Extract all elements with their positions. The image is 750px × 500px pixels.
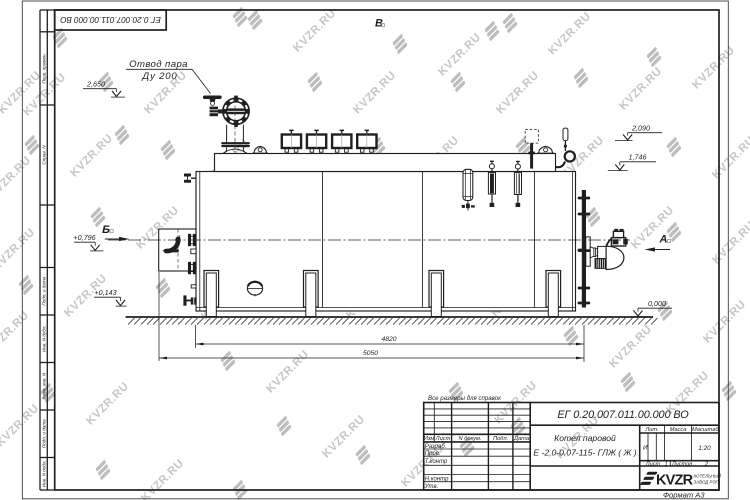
svg-text:1:20: 1:20 xyxy=(698,445,711,452)
svg-text:KVZR.RU: KVZR.RU xyxy=(84,380,131,427)
svg-text:Подп. и дата: Подп. и дата xyxy=(41,276,46,305)
svg-text:ЕГ 0.20.007.011.00.000 ВО: ЕГ 0.20.007.011.00.000 ВО xyxy=(557,409,689,421)
svg-text:Утв.: Утв. xyxy=(424,484,439,490)
svg-text:KVZR.RU: KVZR.RU xyxy=(690,44,737,91)
svg-text:Пров.: Пров. xyxy=(425,451,441,457)
svg-text:KVZR.RU: KVZR.RU xyxy=(264,348,311,395)
svg-text:КОТЕЛЬНЫЙ: КОТЕЛЬНЫЙ xyxy=(694,474,722,479)
svg-text:Инв. N подл.: Инв. N подл. xyxy=(41,460,46,487)
svg-text:1: 1 xyxy=(664,461,667,467)
svg-text:KVZR.RU: KVZR.RU xyxy=(494,69,541,116)
svg-text:5050: 5050 xyxy=(363,350,378,357)
svg-text:4820: 4820 xyxy=(381,336,396,343)
svg-text:Е -2,0-0,07-115- ГЛЖ ( Ж ): Е -2,0-0,07-115- ГЛЖ ( Ж ) xyxy=(533,447,636,457)
svg-text:ЗАВОД РЭП: ЗАВОД РЭП xyxy=(694,480,720,485)
svg-text:Справ. N: Справ. N xyxy=(41,145,46,165)
svg-text:Подп. и дата: Подп. и дата xyxy=(41,419,46,448)
svg-text:KVZR.RU: KVZR.RU xyxy=(701,298,748,345)
svg-text:KVZR.RU: KVZR.RU xyxy=(607,323,654,370)
svg-text:Все размеры для справок: Все размеры для справок xyxy=(428,395,502,402)
svg-text:Лист: Лист xyxy=(645,461,661,467)
svg-text:Подп.: Подп. xyxy=(493,436,508,442)
svg-text:Дата: Дата xyxy=(513,436,529,442)
svg-text:2,090: 2,090 xyxy=(631,124,650,133)
svg-text:KVZR.RU: KVZR.RU xyxy=(0,309,31,356)
svg-text:KVZR.RU: KVZR.RU xyxy=(710,219,750,266)
svg-text:Масштаб: Масштаб xyxy=(692,427,719,433)
svg-text:ЕГ 0.20.007.011.00.000 ВО: ЕГ 0.20.007.011.00.000 ВО xyxy=(60,15,161,24)
svg-text:А: А xyxy=(659,234,668,246)
svg-text:KVZR.RU: KVZR.RU xyxy=(68,132,115,179)
svg-text:Ду 200: Ду 200 xyxy=(141,71,177,82)
svg-text:KVZR: KVZR xyxy=(656,473,694,489)
svg-text:KVZR.RU: KVZR.RU xyxy=(0,154,33,201)
svg-text:Н.контр: Н.контр xyxy=(425,477,449,483)
svg-text:Отвод пара: Отвод пара xyxy=(129,59,188,70)
svg-text:Взам. инв. N: Взам. инв. N xyxy=(41,372,46,399)
svg-text:KVZR.RU: KVZR.RU xyxy=(546,10,593,57)
svg-text:KVZR.RU: KVZR.RU xyxy=(436,31,483,78)
svg-text:Формат А3: Формат А3 xyxy=(663,491,705,500)
svg-text:Т.контр: Т.контр xyxy=(425,459,448,465)
svg-text:1,746: 1,746 xyxy=(629,153,647,162)
svg-text:N докум.: N докум. xyxy=(458,436,481,442)
svg-text:KVZR.RU: KVZR.RU xyxy=(291,7,338,54)
svg-text:Перв. примен.: Перв. примен. xyxy=(41,53,46,84)
svg-text:+0,796: +0,796 xyxy=(73,233,95,242)
svg-text:Лист: Лист xyxy=(435,436,451,442)
svg-text:KVZR.RU: KVZR.RU xyxy=(617,65,664,112)
svg-text:Инв. N дубл.: Инв. N дубл. xyxy=(41,325,46,352)
svg-text:KVZR.RU: KVZR.RU xyxy=(351,69,398,116)
svg-text:И: И xyxy=(643,445,648,452)
svg-text:KVZR.RU: KVZR.RU xyxy=(0,402,41,449)
svg-text:0,000: 0,000 xyxy=(648,299,666,308)
svg-text:+0,143: +0,143 xyxy=(94,288,116,297)
svg-text:Котел паровой: Котел паровой xyxy=(554,433,616,443)
svg-text:2,650: 2,650 xyxy=(86,80,105,89)
svg-text:Масса: Масса xyxy=(670,427,687,433)
svg-text:Листов: Листов xyxy=(671,461,692,467)
svg-text:KVZR.RU: KVZR.RU xyxy=(0,226,37,273)
svg-text:Разраб.: Разраб. xyxy=(425,444,447,450)
svg-text:Лит.: Лит. xyxy=(644,427,658,433)
svg-text:Б: Б xyxy=(102,224,110,236)
svg-text:KVZR.RU: KVZR.RU xyxy=(139,457,186,500)
svg-text:Изм: Изм xyxy=(424,436,435,442)
svg-text:KVZR.RU: KVZR.RU xyxy=(710,134,750,181)
